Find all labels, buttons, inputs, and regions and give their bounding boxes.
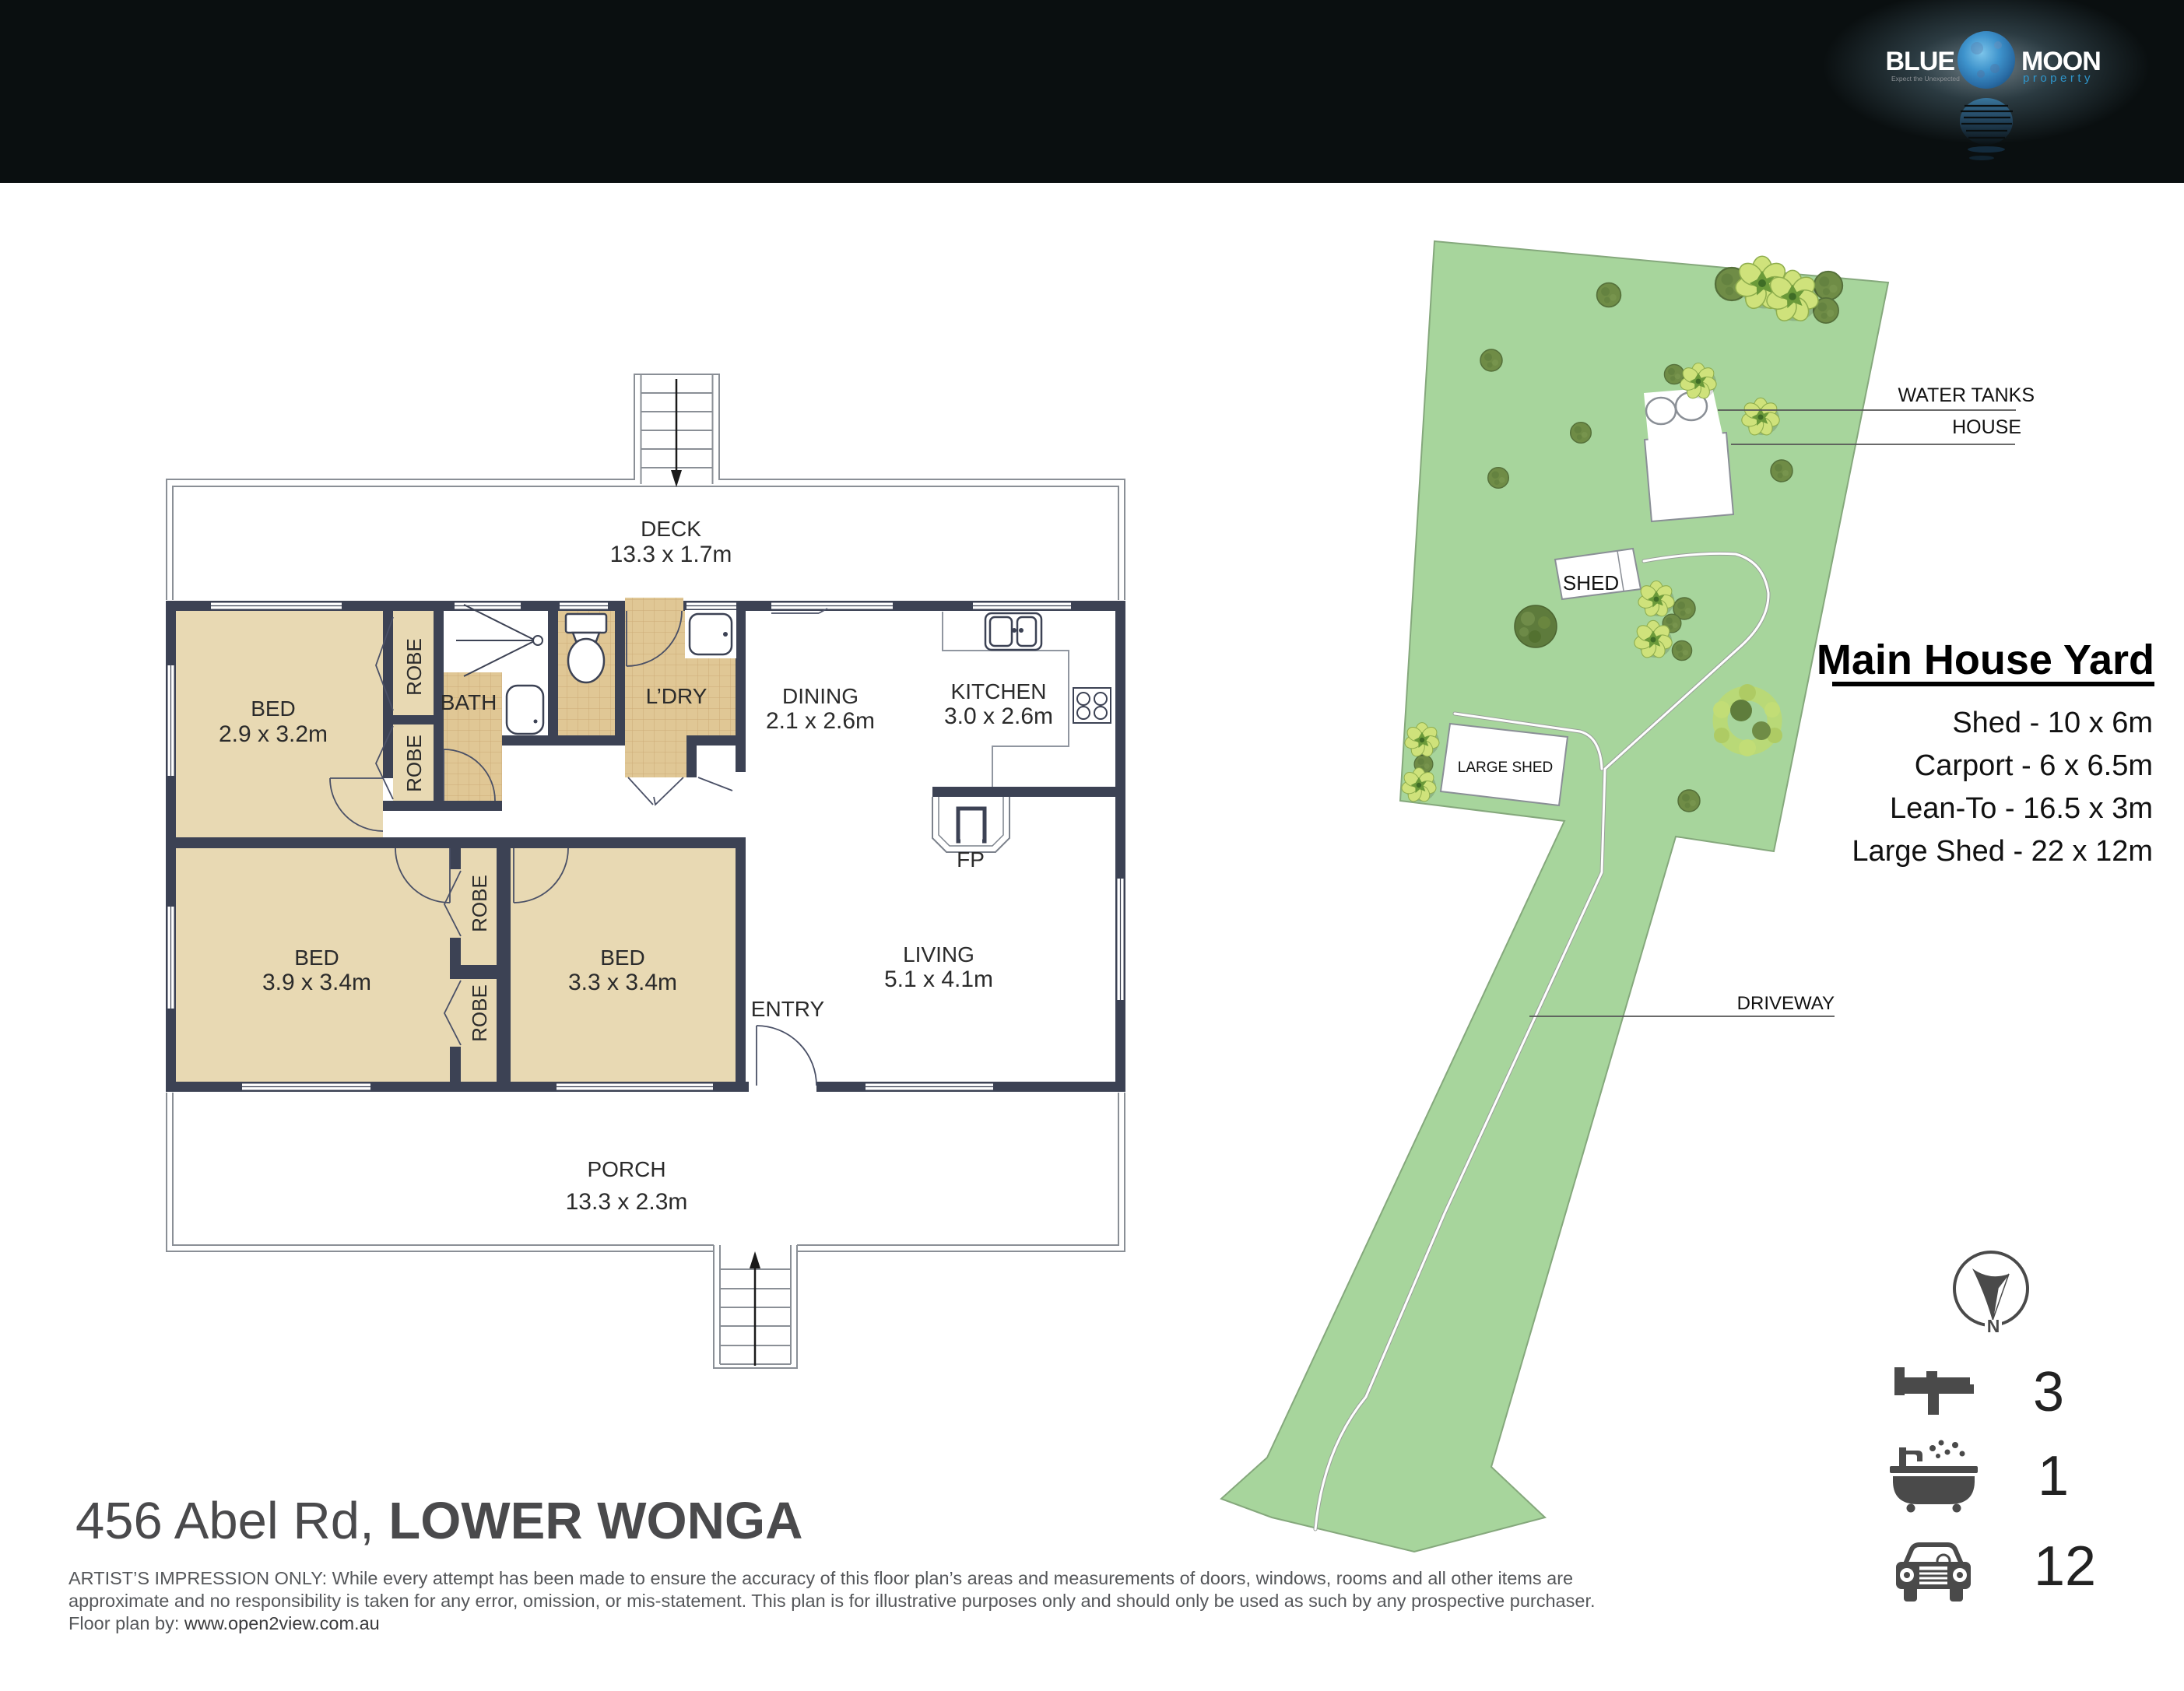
- svg-text:ROBE: ROBE: [402, 638, 426, 696]
- svg-text:2.9 x 3.2m: 2.9 x 3.2m: [219, 721, 328, 747]
- svg-text:Carport - 6 x 6.5m: Carport - 6 x 6.5m: [1915, 749, 2153, 782]
- svg-text:L’DRY: L’DRY: [646, 684, 708, 708]
- svg-text:3.9 x 3.4m: 3.9 x 3.4m: [262, 970, 371, 995]
- svg-text:ROBE: ROBE: [402, 735, 426, 792]
- svg-text:ROBE: ROBE: [468, 875, 491, 932]
- svg-text:SHED: SHED: [1563, 571, 1619, 595]
- svg-text:3.3 x 3.4m: 3.3 x 3.4m: [568, 970, 677, 995]
- svg-text:ENTRY: ENTRY: [751, 997, 825, 1021]
- svg-text:HOUSE: HOUSE: [1952, 416, 2021, 438]
- svg-text:13.3 x 1.7m: 13.3 x 1.7m: [610, 542, 732, 567]
- svg-text:property: property: [2023, 72, 2094, 85]
- svg-text:Main House Yard: Main House Yard: [1817, 637, 2154, 683]
- svg-text:DINING: DINING: [782, 684, 859, 708]
- svg-text:KITCHEN: KITCHEN: [951, 679, 1047, 703]
- svg-text:3: 3: [2033, 1361, 2064, 1423]
- svg-text:456 Abel Rd, LOWER WONGA: 456 Abel Rd, LOWER WONGA: [75, 1492, 803, 1550]
- svg-text:1: 1: [2038, 1445, 2069, 1507]
- svg-text:BED: BED: [294, 945, 339, 970]
- svg-text:LARGE SHED: LARGE SHED: [1458, 760, 1553, 776]
- svg-text:PORCH: PORCH: [587, 1157, 665, 1181]
- svg-text:Expect the Unexpected: Expect the Unexpected: [1891, 75, 1960, 82]
- svg-text:DECK: DECK: [641, 517, 701, 541]
- svg-text:DRIVEWAY: DRIVEWAY: [1737, 993, 1835, 1014]
- svg-text:approximate and no responsibil: approximate and no responsibility is tak…: [68, 1591, 1596, 1611]
- svg-text:3.0 x 2.6m: 3.0 x 2.6m: [944, 703, 1053, 729]
- svg-text:Shed - 10 x 6m: Shed - 10 x 6m: [1952, 707, 2153, 739]
- svg-text:BATH: BATH: [441, 690, 497, 714]
- svg-text:WATER TANKS: WATER TANKS: [1898, 384, 2035, 406]
- svg-text:5.1 x 4.1m: 5.1 x 4.1m: [884, 967, 993, 992]
- svg-text:2.1 x 2.6m: 2.1 x 2.6m: [766, 708, 875, 734]
- svg-text:BED: BED: [600, 945, 645, 970]
- svg-text:BLUE: BLUE: [1885, 47, 1954, 76]
- svg-text:FP: FP: [957, 847, 985, 872]
- svg-text:ROBE: ROBE: [468, 984, 491, 1042]
- svg-text:LIVING: LIVING: [903, 942, 974, 967]
- svg-text:ARTIST’S IMPRESSION ONLY: Whil: ARTIST’S IMPRESSION ONLY: While every at…: [68, 1568, 1573, 1588]
- svg-text:12: 12: [2034, 1535, 2096, 1598]
- svg-text:Large Shed - 22 x 12m: Large Shed - 22 x 12m: [1852, 835, 2153, 868]
- svg-text:13.3 x 2.3m: 13.3 x 2.3m: [566, 1189, 688, 1215]
- svg-text:Floor plan by: www.open2view.c: Floor plan by: www.open2view.com.au: [68, 1613, 380, 1633]
- svg-text:Lean-To - 16.5 x 3m: Lean-To - 16.5 x 3m: [1890, 792, 2153, 825]
- svg-text:N: N: [1987, 1316, 2000, 1336]
- svg-text:BED: BED: [251, 696, 296, 721]
